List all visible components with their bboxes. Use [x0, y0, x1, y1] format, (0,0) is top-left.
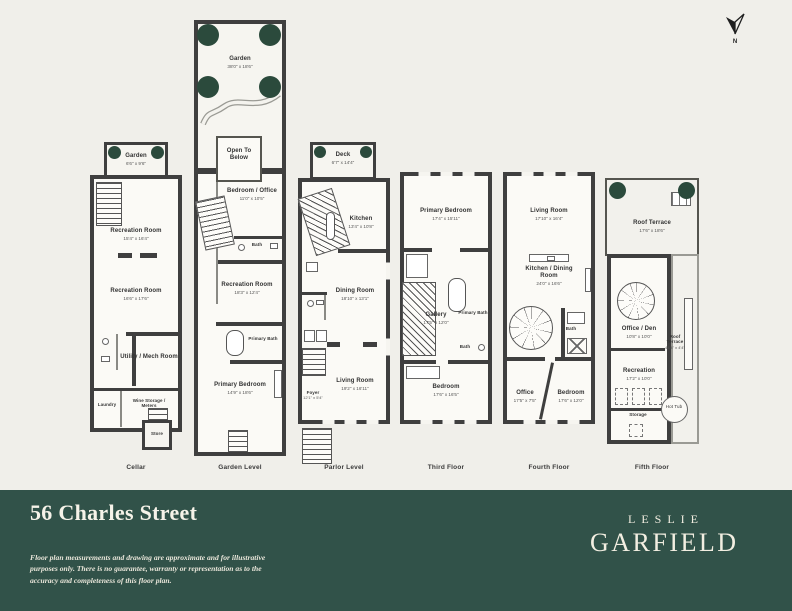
bathtub-fixture	[226, 330, 244, 356]
room-label: Primary Bath	[456, 310, 490, 315]
wall-segment	[120, 391, 122, 427]
wall-segment	[234, 236, 282, 239]
wall-segment	[507, 357, 545, 361]
closet	[406, 366, 440, 379]
brand-line-2: GARFIELD	[563, 528, 763, 558]
compass: N	[720, 12, 750, 45]
refrigerator-fixture	[567, 312, 585, 324]
window-marker	[418, 172, 431, 176]
floor-caption: Third Floor	[400, 464, 492, 471]
skylight-marker	[615, 388, 628, 405]
tree-icon	[259, 24, 281, 46]
room-label: Bedroom 17'6" x 12'0"	[549, 390, 593, 404]
tree-icon	[197, 76, 219, 98]
wall-segment	[555, 357, 591, 361]
room-label: Laundry	[92, 402, 122, 407]
window-marker	[366, 420, 379, 424]
toilet-fixture	[270, 243, 278, 249]
wall-segment	[302, 292, 327, 295]
room-label: Foyer 12'1" x 5'4"	[298, 390, 328, 401]
compass-label: N	[720, 39, 750, 45]
room-label: Office 17'5" x 7'5"	[505, 390, 545, 404]
wall-segment	[94, 388, 178, 391]
property-address: 56 Charles Street	[30, 500, 197, 526]
closet	[304, 330, 315, 342]
room-label: Bath	[559, 326, 583, 331]
wall-segment	[230, 360, 286, 364]
window-marker	[464, 420, 477, 424]
wall-segment	[363, 342, 377, 347]
plan-cellar: Garden 6'6" x 9'6" Recreation Room 15'4"…	[90, 142, 182, 472]
window-marker	[386, 262, 390, 280]
room-label: Living Room 19'2" x 16'11"	[326, 378, 384, 392]
tree-icon	[678, 182, 695, 199]
window-marker	[440, 172, 453, 176]
stairs	[228, 430, 248, 452]
floor-caption: Garden Level	[194, 464, 286, 471]
wall-segment	[216, 322, 286, 326]
window-marker	[442, 420, 455, 424]
wall-segment	[448, 360, 488, 364]
plan-third-floor: Primary Bedroom 17'4" x 15'11" Primary B…	[400, 172, 492, 472]
window-marker	[523, 420, 536, 424]
wall-segment	[561, 308, 565, 358]
wall-segment	[118, 253, 132, 258]
window-marker	[521, 172, 534, 176]
room-label: Primary Bath	[246, 336, 280, 341]
disclaimer-text: Floor plan measurements and drawing are …	[30, 552, 272, 586]
toilet-fixture	[307, 300, 314, 307]
room-label: Roof Terrace 44'4" x 4'4"	[664, 334, 686, 351]
deck-stub: Deck 6'7" x 14'4"	[310, 142, 376, 180]
wall-segment	[404, 248, 432, 252]
window-marker	[322, 420, 335, 424]
room-label: Garden 6'6" x 9'6"	[107, 153, 165, 167]
plan-parlor-level: Deck 6'7" x 14'4" Kitchen 13'4" x 10'8" …	[298, 142, 390, 472]
sink-fixture	[316, 300, 324, 305]
wall-segment	[338, 249, 386, 253]
room-label: Primary Bedroom 17'4" x 15'11"	[414, 208, 478, 222]
hot-tub: Hot Tub	[661, 396, 688, 423]
room-label: Recreation Room 18'3" x 12'4"	[216, 282, 278, 296]
room-label: Primary Bedroom 14'9" x 18'6"	[208, 382, 272, 396]
window-marker	[420, 420, 433, 424]
wall-segment	[116, 334, 118, 370]
wall-segment	[611, 348, 665, 351]
dishwasher-fixture	[547, 256, 555, 261]
tree-icon	[259, 76, 281, 98]
open-to-below: Open To Below	[216, 136, 262, 182]
floor-caption: Fifth Floor	[605, 464, 699, 471]
wall-segment	[327, 342, 340, 347]
room-label: Deck 6'7" x 14'4"	[313, 152, 373, 166]
wall-segment	[460, 248, 488, 252]
room-label: Storage	[615, 412, 661, 417]
wall-segment	[404, 360, 436, 364]
north-arrow-icon	[724, 12, 746, 36]
plan-fourth-floor: Living Room 17'10" x 16'4" Kitchen / Din…	[503, 172, 595, 472]
room-label: Bedroom 17'6" x 16'5"	[414, 384, 478, 398]
window-marker	[344, 420, 357, 424]
floor-caption: Cellar	[90, 464, 182, 471]
wall-segment	[611, 408, 665, 411]
room-label: Dining Room 18'10" x 13'1"	[326, 288, 384, 302]
room-label: Living Room 17'10" x 16'4"	[517, 208, 581, 222]
window-marker	[565, 172, 578, 176]
room-label: Gallery 17'5" x 12'0"	[416, 312, 456, 326]
room-label: Open To Below	[218, 148, 260, 162]
window-marker	[567, 420, 580, 424]
plan-garden-level: Garden 38'0" x 18'6" Open To Below Bedro…	[194, 20, 286, 460]
brand-line-1: LESLIE	[563, 512, 763, 527]
room-label: Utility / Mech Room	[120, 354, 178, 361]
bathtub-fixture	[448, 278, 466, 312]
room-label: Recreation Room 16'6" x 17'6"	[90, 288, 182, 302]
refrigerator-fixture	[306, 262, 318, 272]
shelf-fixture	[274, 370, 282, 398]
sink-fixture	[478, 344, 485, 351]
room-label: Kitchen 13'4" x 10'8"	[338, 216, 384, 230]
room-label: Hot Tub	[664, 404, 684, 409]
footer-band: 56 Charles Street Floor plan measurement…	[0, 490, 792, 611]
window-marker	[386, 338, 390, 356]
wall-segment	[218, 260, 282, 264]
window-marker	[545, 420, 558, 424]
room-label: Bath	[244, 242, 270, 247]
skylight-marker	[632, 388, 645, 405]
spiral-stairs	[509, 306, 553, 350]
room-label: Kitchen / Dining Room 24'0" x 16'6"	[517, 266, 581, 287]
room-label: Bath	[452, 344, 478, 349]
room-label: Wine Storage / Meters	[126, 398, 172, 409]
shower-fixture	[567, 338, 587, 354]
sink-fixture	[101, 356, 110, 362]
garden-stub: Garden 6'6" x 9'6"	[104, 142, 168, 178]
closet	[316, 330, 327, 342]
room-label: Garden 38'0" x 18'6"	[194, 56, 286, 70]
room-label: Bedroom / Office 11'0" x 10'5"	[224, 188, 280, 202]
window-marker	[462, 172, 475, 176]
tree-icon	[197, 24, 219, 46]
store-stub: Store	[142, 420, 172, 450]
floor-caption: Fourth Floor	[503, 464, 595, 471]
tree-icon	[609, 182, 626, 199]
toilet-fixture	[102, 338, 109, 345]
room-label: Recreation 17'2" x 10'0"	[611, 368, 667, 382]
stairs	[302, 348, 326, 376]
room-label: Recreation Room 15'4" x 16'4"	[90, 228, 182, 242]
room-label: Office / Den 10'8" x 10'0"	[611, 326, 667, 340]
window-marker	[543, 172, 556, 176]
range-fixture	[585, 268, 591, 292]
walk-in-closet	[406, 254, 428, 278]
leslie-garfield-logo: LESLIE GARFIELD	[563, 512, 763, 558]
stairs	[148, 408, 168, 420]
spiral-stairs	[617, 282, 655, 320]
floorplan-page: N Garden 6'6" x 9'6" Recreation Room 15'…	[0, 0, 792, 611]
plan-fifth-floor: Roof Terrace 17'6" x 18'6" Office / Den …	[605, 178, 699, 472]
floor-caption: Parlor Level	[298, 464, 390, 471]
stoop-stairs	[302, 428, 332, 464]
stairs	[96, 182, 122, 226]
wall-segment	[140, 253, 157, 258]
kitchen-island	[326, 212, 335, 240]
skylight-marker	[649, 388, 662, 405]
skylight-marker	[629, 424, 643, 437]
room-label: Store	[145, 431, 169, 436]
room-label: Roof Terrace 17'6" x 18'6"	[621, 220, 683, 234]
